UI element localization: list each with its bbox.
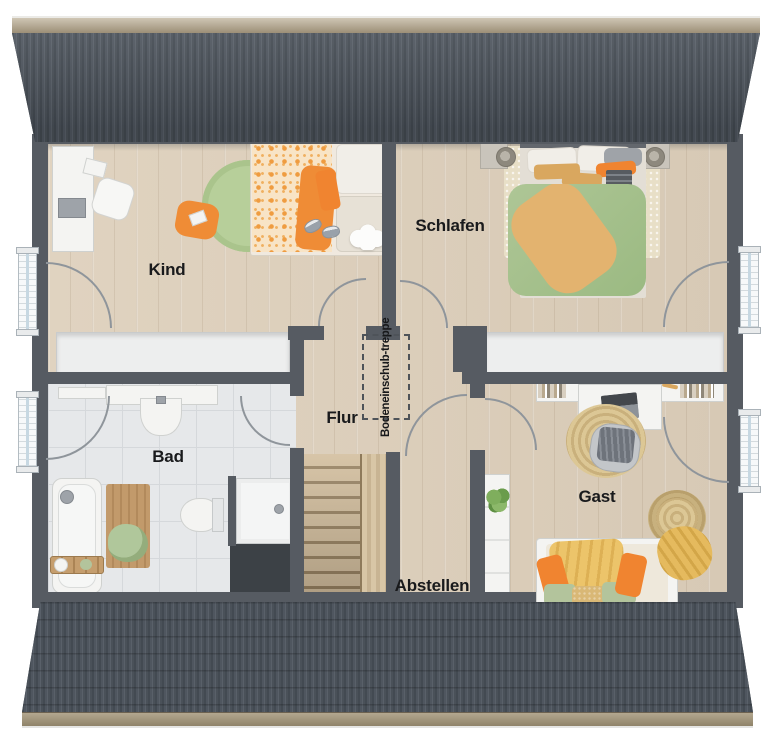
wall-flur-right-lower (470, 450, 485, 600)
window-bad (18, 392, 37, 472)
knee-storage-left (56, 332, 290, 374)
wall-band-left-bottom (48, 372, 304, 384)
floor-plan: Bodeneinschub- treppe Kind Schlafen Bad … (0, 0, 775, 747)
window-cap (16, 247, 39, 254)
window-cap (738, 486, 761, 493)
room-label-schlafen: Schlafen (415, 216, 484, 236)
bedside-lamp (496, 147, 516, 167)
room-label-abstellen: Abstellen (395, 576, 470, 596)
wall-kind-schlafen (382, 140, 396, 340)
attic-hatch-box: Bodeneinschub- treppe (362, 334, 410, 420)
wall-outer-right (727, 140, 743, 596)
plant (484, 486, 512, 514)
wall-flur-left-lower (290, 448, 304, 600)
knee-storage-right (484, 332, 724, 374)
towel (108, 524, 148, 562)
roof-top (12, 33, 760, 142)
bathroom-dark-corner (230, 542, 298, 594)
faucet (156, 396, 166, 404)
wall-flur-left-upper (290, 326, 304, 396)
window-cap (16, 466, 39, 473)
wall-flur-top-c (453, 326, 487, 372)
chair-pillow (596, 426, 635, 464)
shower-drain (274, 504, 284, 514)
window-cap (738, 409, 761, 416)
bath-faucet (60, 490, 74, 504)
room-label-gast: Gast (579, 487, 616, 507)
window-schlafen (740, 247, 759, 333)
wall-band-right-bottom (462, 372, 743, 384)
books (538, 382, 566, 398)
window-kind (18, 248, 37, 335)
staircase-treads (304, 454, 360, 604)
room-label-bad: Bad (152, 447, 184, 467)
duvet-blanket (508, 184, 627, 296)
bed-duvet (508, 184, 646, 296)
window-cap (738, 246, 761, 253)
window-cap (16, 391, 39, 398)
laptop-icon (58, 198, 86, 218)
shower (236, 478, 294, 544)
cloud-rug (348, 220, 386, 250)
towel-roll (54, 558, 68, 572)
window-gast (740, 410, 759, 492)
bedside-lamp (645, 147, 665, 167)
window-cap (16, 329, 39, 336)
wall-outer-left (32, 140, 48, 596)
wall-flur-right-upper (470, 384, 485, 398)
attic-hatch-label-line1: Bodeneinschub- (379, 351, 393, 437)
wall-shower-divider (228, 476, 236, 546)
room-label-flur: Flur (326, 408, 357, 428)
attic-hatch-label-line2: treppe (379, 317, 393, 350)
roof-bottom (22, 602, 753, 712)
window-cap (738, 327, 761, 334)
soap (80, 559, 92, 570)
toilet-tank (212, 498, 224, 532)
attic-hatch-label: Bodeneinschub- treppe (364, 336, 408, 418)
roof-gutter-beam (22, 712, 753, 728)
room-label-kind: Kind (149, 260, 186, 280)
